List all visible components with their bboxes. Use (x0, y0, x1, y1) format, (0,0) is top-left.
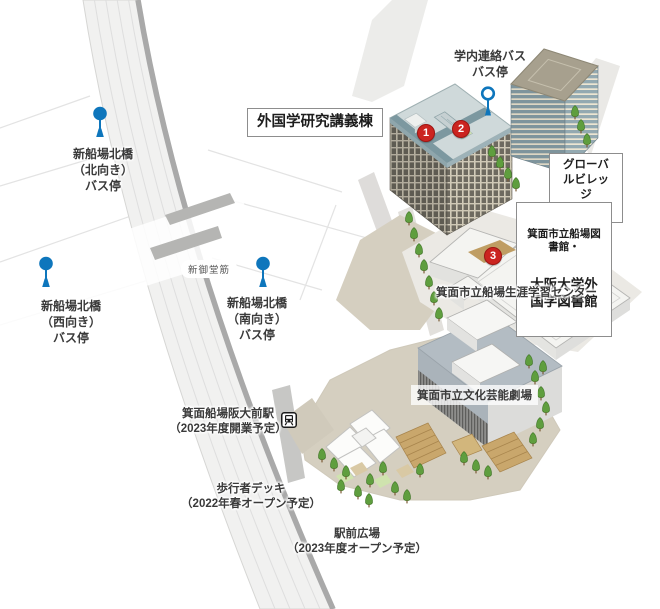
shuttle-bus-stop-label: 学内連絡バス バス停 (454, 49, 526, 81)
campus-access-map: 1 2 3 新船場北橋 （北向き） バス停 新船場北橋 （西向き） バス停 新船… (0, 0, 660, 609)
lecture-hall-label: 外国学研究講義棟 (247, 108, 383, 137)
bus-pin-north-icon[interactable] (91, 106, 109, 145)
map-marker-1[interactable]: 1 (417, 124, 435, 142)
theater-label: 箕面市立文化芸能劇場 (411, 385, 538, 405)
learning-center-label: 箕面市立船場生涯学習センター (436, 286, 597, 301)
station-label: 箕面船場阪大前駅 （2023年度開業予定） (169, 407, 287, 437)
bus-pin-south-icon[interactable] (254, 256, 272, 295)
bus-stop-label-north: 新船場北橋 （北向き） バス停 (73, 147, 133, 194)
bus-stop-label-west: 新船場北橋 （西向き） バス停 (41, 299, 101, 346)
library-label-line1: 箕面市立船場図書館・ (524, 228, 604, 255)
station-plaza-label: 駅前広場 （2023年度オープン予定） (287, 527, 427, 557)
map-marker-2[interactable]: 2 (452, 120, 470, 138)
map-marker-3[interactable]: 3 (484, 247, 502, 265)
road-name-label: 新御堂筋 (181, 260, 237, 278)
bus-pin-west-icon[interactable] (37, 256, 55, 295)
bus-stop-label-south: 新船場北橋 （南向き） バス停 (227, 296, 287, 343)
library-label: 箕面市立船場図書館・ 大阪大学外国学図書館 (516, 202, 612, 337)
pedestrian-deck-label: 歩行者デッキ （2022年春オープン予定） (181, 482, 321, 512)
shuttle-bus-pin-icon[interactable] (479, 86, 497, 123)
